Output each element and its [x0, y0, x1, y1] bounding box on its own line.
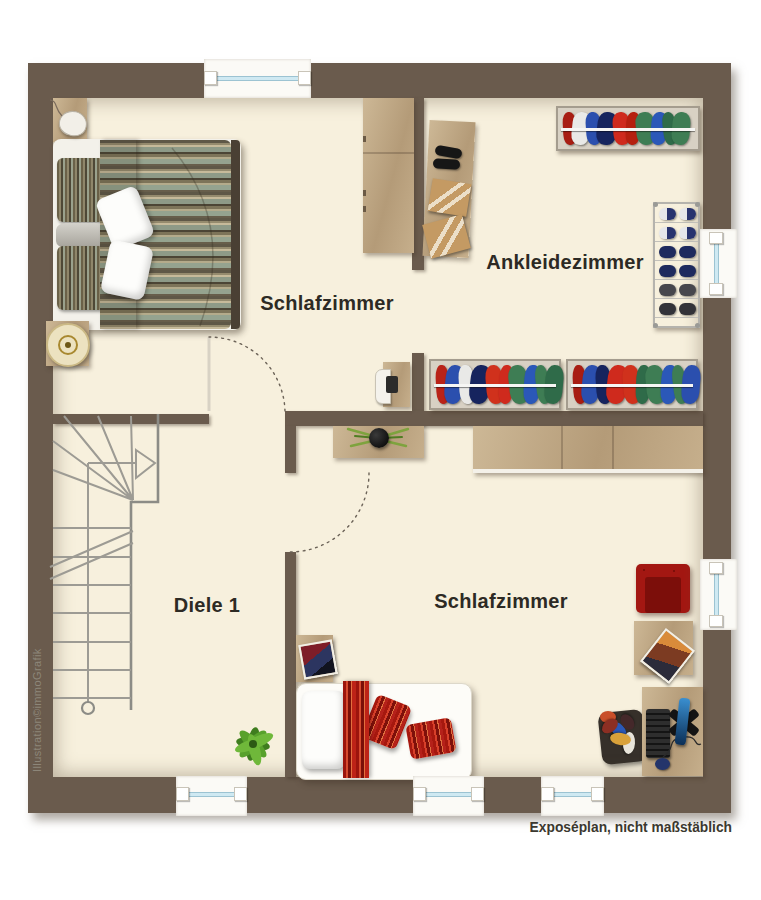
- keyboard: [646, 709, 670, 758]
- window-glazing: [549, 792, 596, 797]
- rack-post: [695, 323, 700, 328]
- window-bottom-bedroom2-right: [541, 776, 604, 816]
- illustration-credit: Illustration©immoGrafik: [31, 648, 43, 772]
- storage-box: [428, 178, 472, 217]
- magazine: [298, 639, 338, 679]
- window-right-bedroom2: [700, 559, 737, 630]
- window-frame-block: [176, 787, 189, 801]
- window-frame-block: [471, 787, 484, 801]
- clothes-rack: [556, 106, 700, 151]
- shoe: [659, 227, 676, 239]
- floorplan-canvas: Schlafzimmer Ankleidezimmer Diele 1 Schl…: [0, 0, 761, 900]
- double-bed: [53, 139, 241, 330]
- vanity-mirror: [386, 376, 398, 393]
- rack-post: [653, 202, 658, 207]
- window-frame-block: [204, 71, 217, 85]
- shoe: [679, 208, 696, 220]
- wall-middle-horizontal: [285, 411, 703, 426]
- room-label-bedroom-bottom: Schlafzimmer: [434, 590, 568, 613]
- shoe: [679, 303, 696, 315]
- computer-mouse: [655, 758, 670, 770]
- clothes-rail: [561, 128, 695, 131]
- disclaimer-text: Exposéplan, nicht maßstäblich: [530, 818, 732, 835]
- window-glazing: [212, 76, 303, 81]
- sideboard-seam: [612, 426, 614, 469]
- blanket-fold: [56, 223, 106, 248]
- window-frame-block: [234, 787, 247, 801]
- striped-runner: [343, 681, 369, 778]
- wall-hallway-bedroom2-lower: [285, 552, 296, 777]
- striped-bolster: [57, 158, 105, 222]
- wardrobe: [363, 98, 414, 253]
- window-frame-block: [413, 787, 426, 801]
- wall-hallway-bedroom2-upper: [285, 426, 296, 473]
- wall-bedroom-hallway: [53, 414, 209, 424]
- long-sideboard: [473, 426, 703, 473]
- window-frame-block: [709, 562, 723, 574]
- clothes-rail: [571, 384, 693, 387]
- window-frame-block: [709, 232, 723, 244]
- clothes-rack: [566, 359, 698, 410]
- shoe: [679, 227, 696, 239]
- shoe-rack: [653, 202, 700, 328]
- clothes-pile: [598, 709, 648, 765]
- room-label-hallway: Diele 1: [174, 594, 241, 617]
- wardrobe-handle: [363, 190, 366, 196]
- wardrobe-seam: [363, 152, 414, 154]
- shoe: [659, 303, 676, 315]
- single-bed: [296, 681, 472, 778]
- window-top: [204, 59, 311, 98]
- window-frame-block: [591, 787, 604, 801]
- window-right-dressing: [700, 229, 737, 298]
- window-glazing: [714, 567, 719, 622]
- room-label-dressing-room: Ankleidezimmer: [486, 251, 644, 274]
- wardrobe-handle: [363, 136, 366, 142]
- shoe: [679, 284, 696, 296]
- clothes-rail: [434, 384, 556, 387]
- shoe: [659, 208, 676, 220]
- sideboard-seam: [561, 426, 563, 469]
- window-bottom-bedroom2-left: [413, 776, 484, 816]
- striped-bolster: [57, 246, 105, 310]
- window-frame-block: [541, 787, 554, 801]
- sideboard-edge: [473, 469, 703, 473]
- rack-post: [653, 323, 658, 328]
- window-glazing: [184, 792, 239, 797]
- decor-bowl: [369, 428, 389, 448]
- room-label-bedroom-top: Schlafzimmer: [260, 292, 394, 315]
- window-frame-block: [709, 615, 723, 627]
- shoe: [679, 246, 696, 258]
- window-glazing: [421, 792, 476, 797]
- window-frame-block: [709, 283, 723, 295]
- slippers: [433, 158, 461, 170]
- white-pillow: [302, 691, 345, 769]
- shoe: [659, 284, 676, 296]
- red-armchair: [636, 564, 690, 613]
- armchair-seat: [645, 577, 681, 613]
- shoe: [679, 265, 696, 277]
- shoe: [659, 265, 676, 277]
- wardrobe-handle: [363, 206, 366, 212]
- shoe: [659, 246, 676, 258]
- window-frame-block: [298, 71, 311, 85]
- round-stool: [46, 323, 90, 367]
- bed-footboard: [231, 140, 240, 329]
- clothes-rack: [429, 359, 561, 410]
- rack-post: [695, 202, 700, 207]
- window-bottom-hallway: [176, 776, 247, 816]
- stool-button: [65, 342, 71, 348]
